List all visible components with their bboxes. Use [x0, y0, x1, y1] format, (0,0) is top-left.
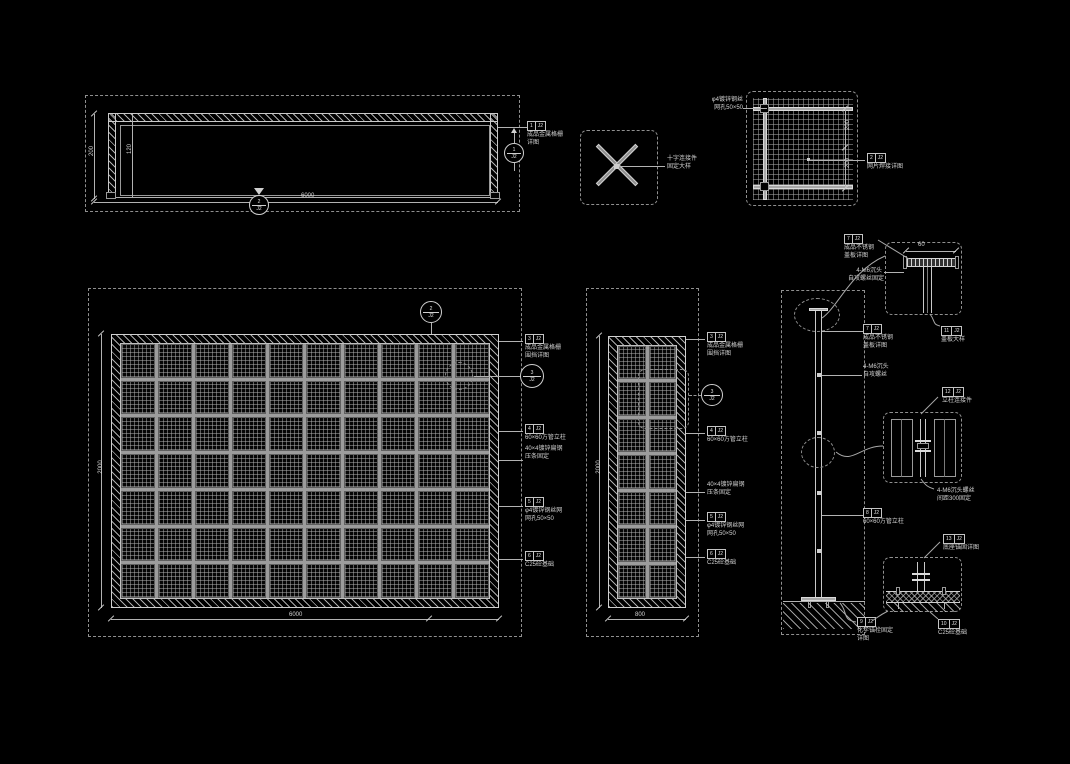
section-cut-arrow — [254, 188, 264, 195]
plan-left-rail — [108, 113, 116, 198]
plan-end-cap-left — [106, 192, 116, 199]
mesh-cell — [455, 528, 489, 562]
detail-callout-tag: 2J2 — [867, 153, 886, 163]
bubble-sheet: J2 — [428, 313, 433, 319]
mesh-cell — [306, 564, 340, 598]
callout-label: C25砼基础 — [707, 559, 736, 567]
callout-label: 网孔50×50 — [707, 530, 736, 538]
marker-sheet: J2 — [256, 206, 261, 212]
leader-line — [686, 492, 705, 493]
leader-line — [499, 559, 523, 560]
mesh-cell — [121, 491, 155, 525]
mesh-cell — [381, 454, 415, 488]
mesh-cell — [649, 528, 677, 561]
tag-sheet: J2 — [715, 427, 725, 435]
leader-detail-c-left — [872, 611, 888, 621]
dimension-text: 200 — [845, 148, 851, 178]
mesh-cell — [232, 381, 266, 415]
mesh-cell — [158, 381, 192, 415]
detail-callout-tag: 5J2 — [707, 512, 726, 522]
mesh-cell — [306, 528, 340, 562]
mesh-cell — [195, 491, 229, 525]
leader-line — [686, 520, 705, 521]
callout-label: φ4镀锌钢丝网 — [707, 522, 744, 530]
dimension-text: 2000 — [98, 452, 104, 482]
mesh-weld-detail: φ4镀锌钢丝 网孔50×50 200 200 2J2 网片焊接详图 — [746, 91, 858, 206]
marker-stem — [514, 133, 515, 143]
leader-detail-c-right — [930, 612, 938, 619]
callout-label: φ4镀锌钢丝 — [691, 96, 743, 104]
side-elevation-boundary: 2000 800 3J2 3J2 成品金属格栅 围挡详图 4J2 60×60方管… — [586, 288, 699, 637]
marker-sheet: J2 — [511, 154, 516, 160]
callout-label: 成品金属格栅 — [525, 344, 561, 352]
bubble-sheet: J2 — [709, 396, 714, 402]
mesh-cell — [158, 564, 192, 598]
plan-inner-face — [120, 125, 490, 196]
mesh-cell — [195, 417, 229, 451]
plan-top-rail — [108, 113, 498, 122]
leader-detail-b-bottom — [921, 479, 934, 489]
detail-indicator-rect — [638, 369, 689, 429]
mesh-cell — [306, 344, 340, 378]
plan-right-rail — [490, 113, 498, 198]
dimension-tick — [495, 198, 501, 204]
callout-label: 详图 — [527, 139, 539, 147]
dimension-text: 200 — [845, 110, 851, 140]
mesh-cell — [381, 564, 415, 598]
callout-label: 40×4镀锌扁钢 — [707, 481, 745, 489]
dimension-text: 200 — [89, 136, 95, 166]
mesh-cell — [232, 454, 266, 488]
mesh-cell — [269, 417, 303, 451]
tag-sheet: J2 — [533, 425, 543, 433]
mesh-cell — [455, 454, 489, 488]
mesh-cell — [618, 565, 646, 598]
front-elevation-boundary: 2000 6000 2J2 3J2 3J2 成品金属格栅 围挡详图 4J2 60… — [88, 288, 522, 637]
mesh-cell — [381, 381, 415, 415]
tag-sheet: J2 — [533, 552, 543, 560]
mesh-cell — [121, 528, 155, 562]
mesh-cell — [269, 564, 303, 598]
mesh-cell — [195, 454, 229, 488]
tag-sheet: J2 — [533, 498, 543, 506]
mesh-cell — [344, 417, 378, 451]
callout-label: 网片焊接详图 — [867, 163, 903, 171]
mesh-cell — [158, 417, 192, 451]
dimension-text: 6000 — [289, 611, 302, 619]
mesh-cell — [344, 564, 378, 598]
mesh-cell — [418, 381, 452, 415]
section-marker: 1J2 — [504, 143, 524, 163]
mesh-cell — [306, 454, 340, 488]
detail-callout-tag: 6J2 — [525, 551, 544, 561]
callout-label: 压条固定 — [525, 453, 549, 461]
callout-label: 60×60方管立柱 — [525, 434, 566, 442]
section-cut-marker: 2J2 — [249, 195, 269, 215]
plan-end-cap-right — [490, 192, 500, 199]
leader-curves-overlay — [760, 225, 1070, 665]
detail-bubble: 2J2 — [420, 301, 442, 323]
mesh-cell — [618, 492, 646, 525]
detail-callout-tag: 4J2 — [707, 426, 726, 436]
callout-label: 成品金属格栅 — [527, 131, 563, 139]
leader-line — [498, 127, 528, 128]
tag-sheet: J2 — [715, 513, 725, 521]
leader-line — [619, 166, 665, 167]
mesh-panel-frame — [111, 334, 499, 608]
tag-number: 5 — [526, 498, 533, 506]
mesh-cell — [418, 417, 452, 451]
detail-callout-tag: 3J2 — [525, 334, 544, 344]
dimension-tick — [98, 604, 104, 610]
mesh-cell — [306, 417, 340, 451]
leader-detail-a-top — [878, 240, 909, 259]
mesh-cell — [381, 528, 415, 562]
leader-line — [499, 506, 523, 507]
callout-label: 成品金属格栅 — [707, 342, 743, 350]
tag-sheet: J2 — [715, 333, 725, 341]
tag-sheet: J2 — [535, 122, 545, 130]
mesh-cell — [269, 454, 303, 488]
leader-detail-a-bottom — [930, 314, 940, 326]
leader-line — [686, 557, 705, 558]
dimension-tick — [683, 615, 689, 621]
leader-line — [809, 160, 865, 161]
cad-drawing-sheet: { "colors": {"background":"#000000","lin… — [0, 0, 1070, 764]
mesh-cell — [232, 528, 266, 562]
tag-sheet: J2 — [875, 154, 885, 162]
callout-label: 十字连接件 — [667, 155, 697, 163]
leader-curve-base-to-label — [840, 603, 856, 622]
mesh-cell — [158, 491, 192, 525]
mesh-cell — [121, 564, 155, 598]
mesh-cell — [649, 492, 677, 525]
mesh-cell — [455, 491, 489, 525]
detail-callout-tag: 4J2 — [525, 424, 544, 434]
cross-connector-detail: 十字连接件 固定大样 — [580, 130, 658, 205]
leader-line — [686, 339, 705, 340]
mesh-cell — [269, 491, 303, 525]
mesh-cell — [344, 344, 378, 378]
leader-line — [743, 108, 767, 109]
mesh-panel-grid — [120, 343, 490, 599]
mesh-cell — [195, 564, 229, 598]
leader-line — [499, 341, 523, 342]
mesh-cell — [158, 344, 192, 378]
mesh-cell — [306, 381, 340, 415]
mesh-cell — [158, 454, 192, 488]
mesh-cell — [344, 381, 378, 415]
leader-line — [686, 433, 705, 434]
tag-number: 5 — [708, 513, 715, 521]
mesh-cell — [269, 344, 303, 378]
tag-number: 6 — [526, 552, 533, 560]
bubble-sheet: J2 — [529, 377, 534, 383]
leader-line — [499, 460, 523, 461]
mesh-cell — [195, 381, 229, 415]
dimension-line — [94, 202, 498, 203]
leader-line — [431, 323, 432, 334]
tag-number: 1 — [528, 122, 535, 130]
tag-number: 2 — [868, 154, 875, 162]
detail-bubble: 3J2 — [701, 384, 723, 406]
mesh-cell — [418, 454, 452, 488]
tag-number: 4 — [526, 425, 533, 433]
mesh-cell — [344, 491, 378, 525]
dimension-tick — [496, 615, 502, 621]
dimension-text: 2000 — [596, 452, 602, 482]
mesh-cell — [455, 417, 489, 451]
leader-curve-post-top-to-detail — [822, 256, 885, 318]
dimension-text: 800 — [635, 611, 645, 619]
callout-label: 围挡详图 — [707, 350, 731, 358]
mesh-cell — [618, 528, 646, 561]
detail-callout-tag: 3J2 — [707, 332, 726, 342]
mesh-cell — [232, 417, 266, 451]
mesh-cell — [418, 564, 452, 598]
callout-label: 围挡详图 — [525, 352, 549, 360]
mesh-cell — [232, 491, 266, 525]
mesh-cell — [121, 381, 155, 415]
mesh-cell — [121, 344, 155, 378]
detail-indicator-circle — [445, 362, 473, 390]
callout-label: 固定大样 — [667, 163, 691, 171]
marker-stem — [514, 163, 515, 171]
mesh-cell — [121, 417, 155, 451]
tag-sheet: J2 — [715, 550, 725, 558]
detail-callout-tag: 1J2 — [527, 121, 546, 131]
tag-sheet: J2 — [533, 335, 543, 343]
mesh-cell — [344, 454, 378, 488]
leader-line — [499, 431, 523, 432]
mesh-cell — [121, 454, 155, 488]
dimension-line — [111, 619, 499, 620]
detail-callout-tag: 5J2 — [525, 497, 544, 507]
mesh-cell — [269, 528, 303, 562]
mesh-cell — [649, 455, 677, 488]
callout-label: 60×60方管立柱 — [707, 436, 748, 444]
callout-label: φ4镀锌钢丝网 — [525, 507, 562, 515]
mesh-cell — [649, 565, 677, 598]
mesh-cell — [418, 528, 452, 562]
weld-node — [760, 182, 769, 191]
mesh-cell — [455, 564, 489, 598]
tag-number: 6 — [708, 550, 715, 558]
plan-view-boundary: 200 120 6000 2J2 1J2 1J2 成品金属格栅 详图 — [85, 95, 520, 212]
callout-label: 40×4镀锌扁钢 — [525, 445, 563, 453]
mesh-cell — [232, 564, 266, 598]
dimension-line — [608, 619, 686, 620]
callout-label: 压条固定 — [707, 489, 731, 497]
dimension-text: 6000 — [301, 192, 314, 200]
dimension-text: 120 — [127, 134, 133, 164]
mesh-cell — [232, 344, 266, 378]
mesh-cell — [381, 417, 415, 451]
mesh-cell — [381, 491, 415, 525]
tag-number: 3 — [708, 333, 715, 341]
leader-line-dashed — [689, 395, 701, 396]
mesh-cell — [269, 381, 303, 415]
mesh-cell — [195, 344, 229, 378]
detail-bubble: 3J2 — [520, 364, 544, 388]
leader-line — [474, 376, 520, 377]
leader-detail-b-top — [921, 397, 938, 414]
detail-callout-tag: 6J2 — [707, 549, 726, 559]
callout-label: 网孔50×50 — [691, 104, 743, 112]
mesh-cell — [158, 528, 192, 562]
mesh-cell — [195, 528, 229, 562]
mesh-cell — [344, 528, 378, 562]
tag-number: 3 — [526, 335, 533, 343]
dimension-tick — [596, 604, 602, 610]
leader-detail-c-top — [924, 542, 940, 558]
mesh-cell — [306, 491, 340, 525]
callout-label: C25砼基础 — [525, 561, 554, 569]
mesh-cell — [618, 455, 646, 488]
leader-curve-mid-to-detail — [836, 446, 883, 457]
mesh-cell — [418, 491, 452, 525]
callout-label: 网孔50×50 — [525, 515, 554, 523]
tag-number: 4 — [708, 427, 715, 435]
mesh-cell — [381, 344, 415, 378]
